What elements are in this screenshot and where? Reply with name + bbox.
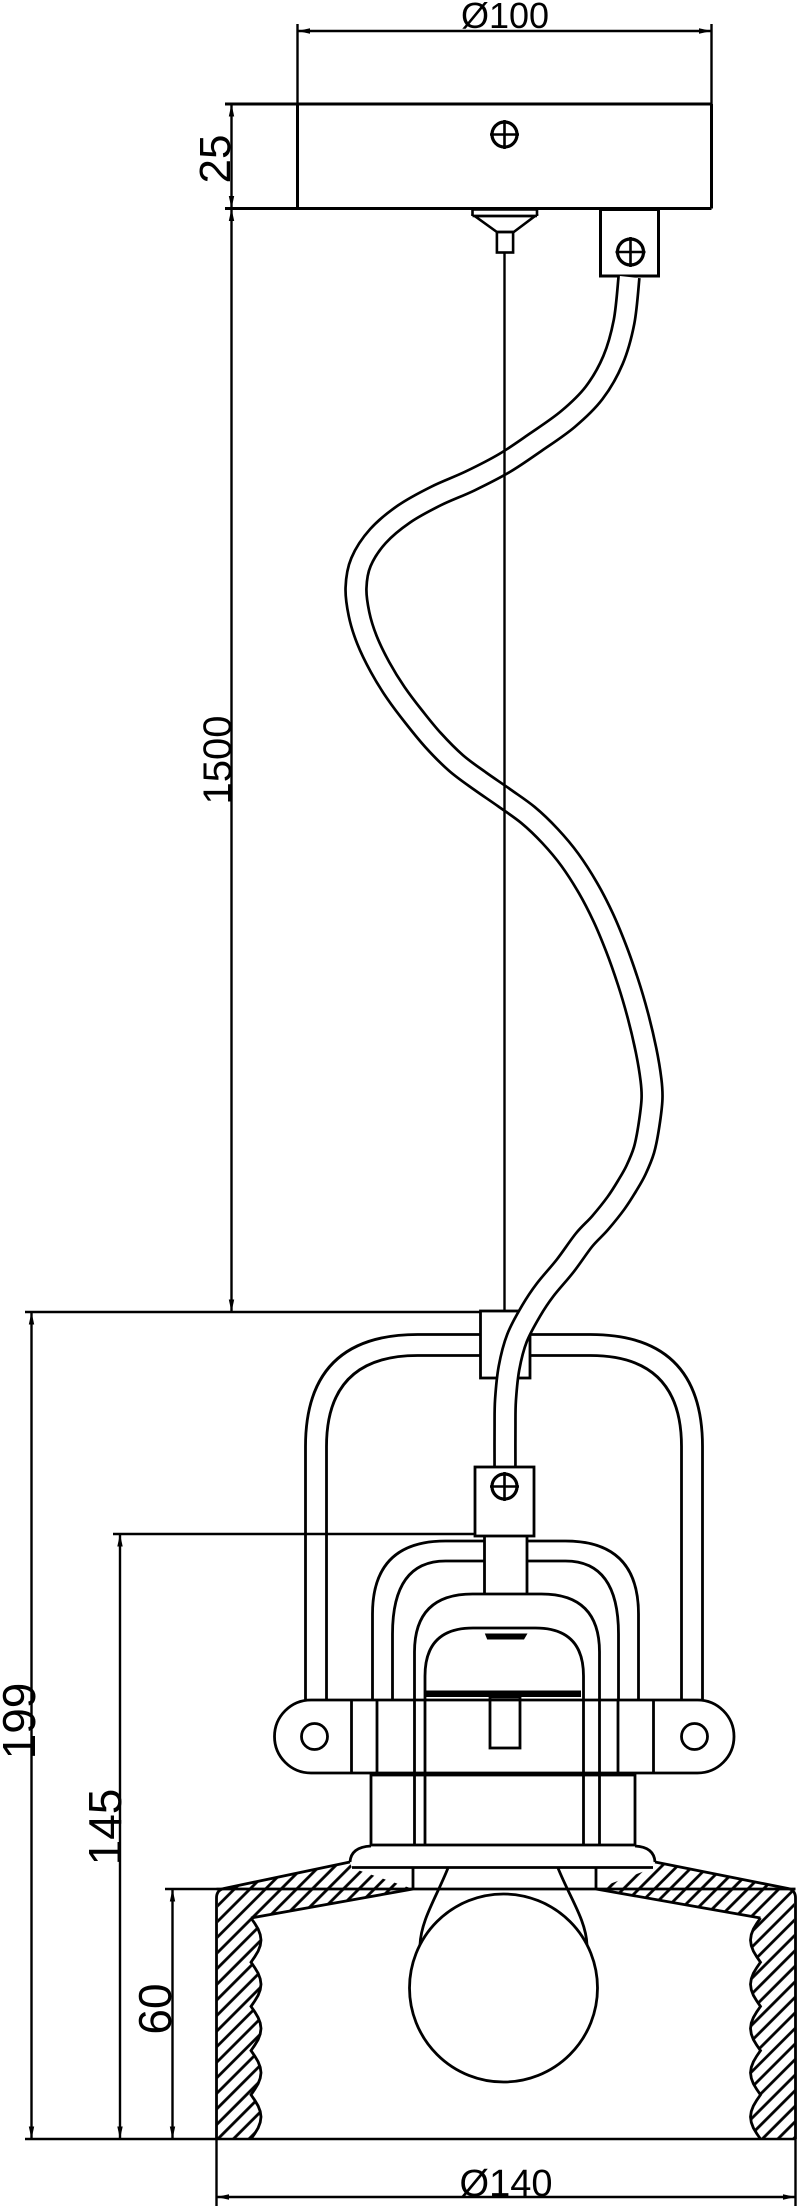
svg-text:25: 25 [191, 135, 240, 184]
svg-text:1500: 1500 [196, 716, 240, 805]
svg-text:Ø140: Ø140 [460, 2163, 553, 2205]
svg-text:60: 60 [129, 1983, 181, 2034]
svg-text:145: 145 [79, 1789, 131, 1866]
svg-text:Ø100: Ø100 [461, 0, 549, 36]
svg-text:199: 199 [0, 1683, 45, 1760]
